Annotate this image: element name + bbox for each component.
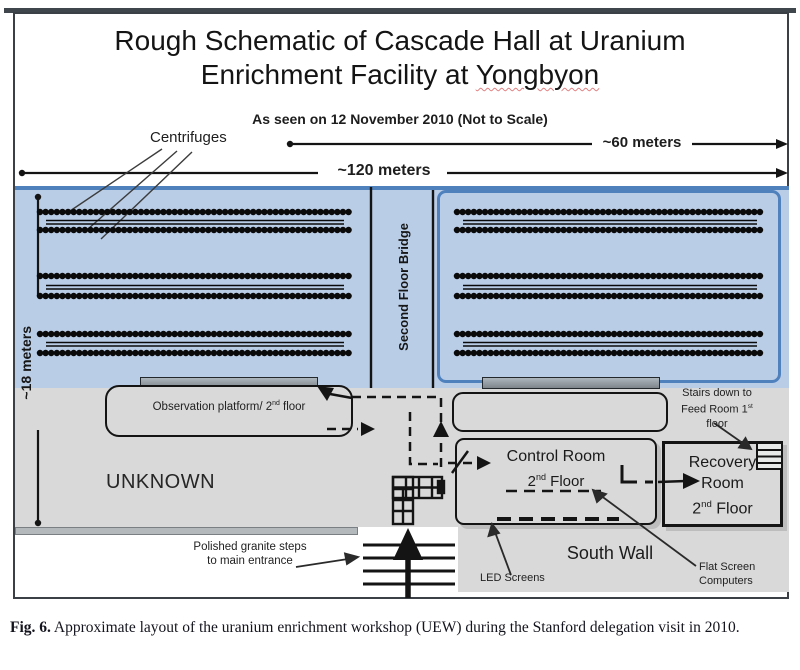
observation-platform-box: Observation platform/ 2nd floor	[105, 385, 353, 437]
yongbyon-underlined: Yongbyon	[476, 59, 600, 90]
control-room-label: Control Room	[457, 446, 655, 467]
measure-120m-label: ~120 meters	[318, 162, 450, 180]
figure-caption: Fig. 6. Approximate layout of the uraniu…	[10, 617, 790, 638]
cascade-right-section-border	[437, 190, 781, 383]
recovery-room-label-1: Recovery	[665, 452, 780, 473]
recovery-room-floor-label: 2nd Floor	[665, 494, 780, 519]
recovery-room-label-2: Room	[665, 473, 780, 494]
observation-platform-label: Observation platform/ 2nd floor	[153, 397, 306, 414]
observation-platform-rail-right	[482, 377, 660, 389]
measure-18m-label: ~18 meters	[13, 297, 39, 429]
unknown-area-label: UNKNOWN	[106, 471, 215, 494]
right-walkway-box	[452, 392, 668, 432]
granite-steps-label: Polished granite steps to main entrance	[180, 540, 320, 568]
south-wall-label: South Wall	[545, 543, 675, 564]
second-floor-bridge-label: Second Floor Bridge	[374, 188, 432, 386]
flat-screen-computers-label: Flat Screen Computers	[699, 560, 779, 588]
centrifuges-label: Centrifuges	[150, 129, 227, 146]
recovery-room-box: Recovery Room 2nd Floor	[662, 441, 783, 527]
south-wall-bar	[15, 527, 358, 535]
stairs-down-note: Stairs down to Feed Room 1st floor	[652, 386, 782, 431]
control-room-box: Control Room 2nd Floor	[455, 438, 657, 525]
led-screens-label: LED Screens	[480, 571, 545, 585]
figure-caption-text: Approximate layout of the uranium enrich…	[51, 619, 740, 636]
title-line-1: Rough Schematic of Cascade Hall at Urani…	[0, 24, 800, 58]
figure-caption-number: Fig. 6.	[10, 619, 51, 636]
control-room-floor-label: 2nd Floor	[457, 467, 655, 492]
measure-60m-label: ~60 meters	[592, 134, 692, 151]
title-line-2: Enrichment Facility at Yongbyon	[0, 58, 800, 92]
figure-6-schematic: Observation platform/ 2nd floor Control …	[0, 0, 800, 670]
diagram-title: Rough Schematic of Cascade Hall at Urani…	[0, 24, 800, 92]
diagram-subtitle: As seen on 12 November 2010 (Not to Scal…	[0, 111, 800, 127]
